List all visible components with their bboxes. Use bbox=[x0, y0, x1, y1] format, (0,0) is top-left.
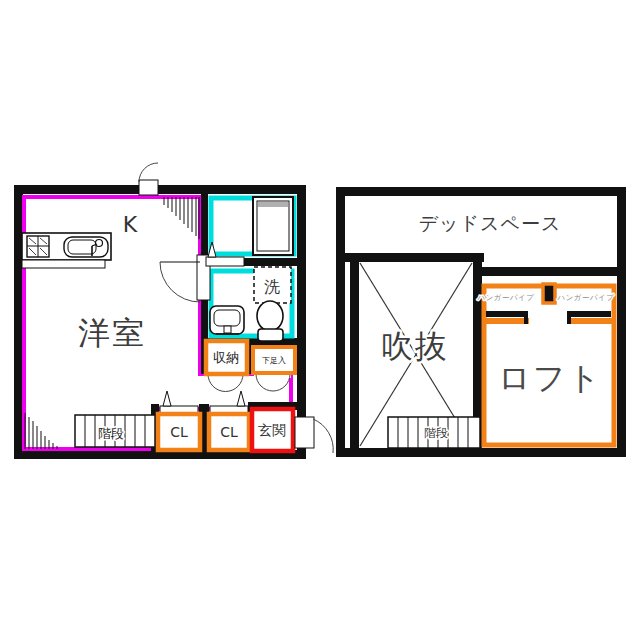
kitchen-label: K bbox=[123, 212, 138, 237]
storage-label: 収納 bbox=[213, 350, 239, 365]
void-label: 吹抜 bbox=[381, 327, 449, 365]
washer-label: 洗 bbox=[264, 277, 280, 296]
entrance-door bbox=[295, 417, 333, 453]
wall bbox=[473, 267, 622, 276]
balcony-door bbox=[139, 163, 158, 195]
western-room-label: 洋室 bbox=[78, 314, 146, 352]
first-floor-plan: K 洋室 洗 収納 下足入 CL CL 玄関 階段 bbox=[19, 163, 334, 455]
closet1-label: CL bbox=[170, 424, 188, 440]
stairs-label-1f: 階段 bbox=[98, 426, 124, 441]
bathtub bbox=[253, 197, 293, 255]
loft-label: ロフト bbox=[498, 359, 602, 397]
stairs-label-loft: 階段 bbox=[424, 426, 448, 440]
closet2-label: CL bbox=[220, 424, 238, 440]
hanger-pipe-icon bbox=[486, 311, 528, 317]
shoe-storage-label: 下足入 bbox=[262, 356, 286, 365]
hanger-pipe-left-label: ハンガーパイプ bbox=[476, 293, 534, 302]
wall bbox=[244, 258, 298, 266]
kitchen-counter bbox=[22, 233, 111, 268]
wall bbox=[201, 194, 208, 256]
void-wall bbox=[350, 262, 359, 448]
toilet bbox=[257, 301, 283, 341]
floor-plan-canvas: K 洋室 洗 収納 下足入 CL CL 玄関 階段 bbox=[0, 0, 640, 640]
hanger-pipe-right-label: ハンガーパイプ bbox=[556, 293, 614, 302]
dead-space-label: デッドスペース bbox=[419, 212, 562, 234]
loft-floor-plan: デッドスペース 吹抜 ロフト ハンガーパイプ ハンガーパイプ 階段 bbox=[341, 192, 623, 453]
stove-icon bbox=[27, 236, 49, 257]
wall bbox=[345, 253, 484, 262]
sink-icon bbox=[64, 237, 108, 257]
hanger-pipe-icon bbox=[567, 311, 611, 317]
entrance-label: 玄関 bbox=[258, 422, 286, 438]
vanity-sink bbox=[210, 306, 244, 334]
floor-plan-page: K 洋室 洗 収納 下足入 CL CL 玄関 階段 bbox=[0, 0, 640, 640]
